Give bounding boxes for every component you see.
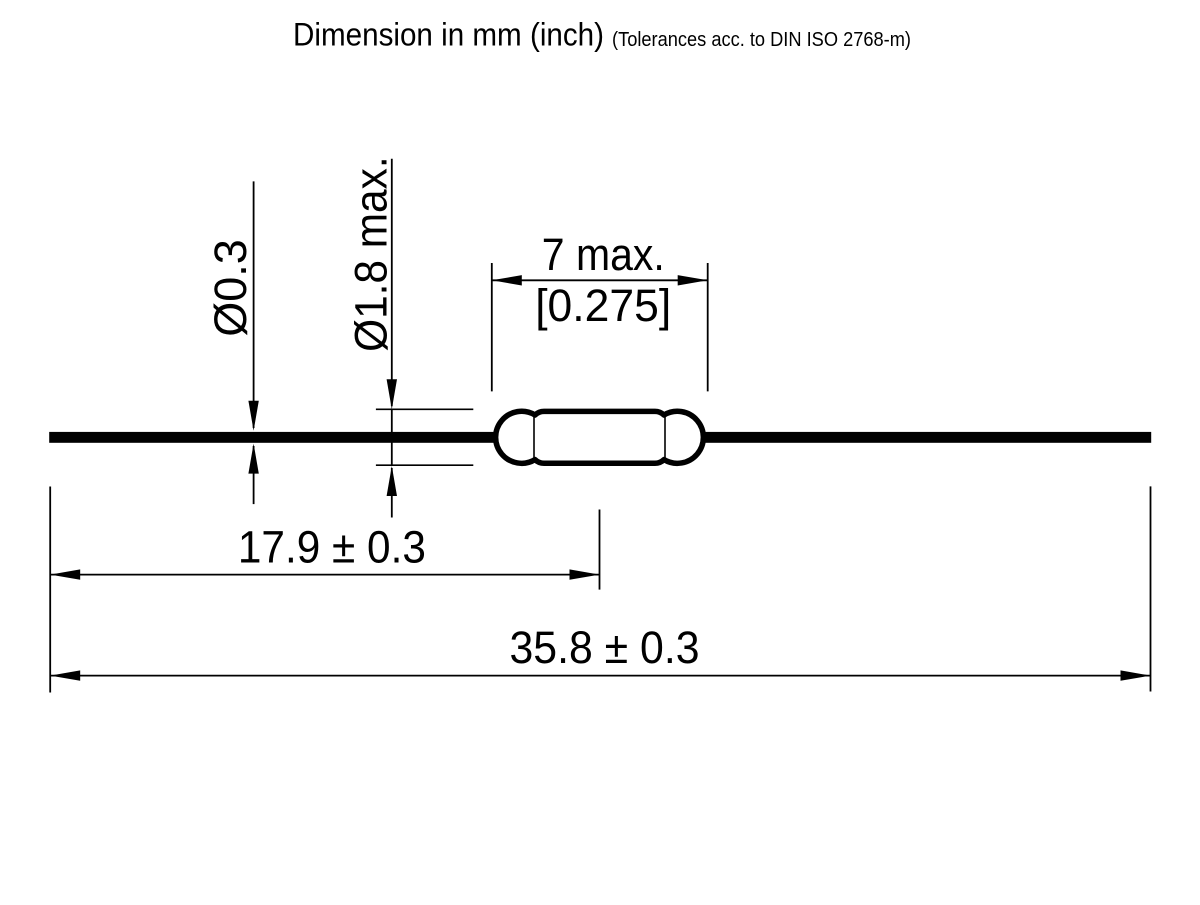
svg-text:35.8 ± 0.3: 35.8 ± 0.3: [510, 622, 700, 673]
svg-text:Ø0.3: Ø0.3: [205, 239, 256, 337]
svg-text:Ø1.8 max.: Ø1.8 max.: [346, 156, 397, 352]
svg-text:17.9 ± 0.3: 17.9 ± 0.3: [238, 521, 426, 572]
svg-text:Dimension in mm (inch): Dimension in mm (inch): [293, 16, 604, 52]
svg-text:(Tolerances acc. to DIN ISO 27: (Tolerances acc. to DIN ISO 2768-m): [612, 29, 911, 51]
svg-text:7 max.: 7 max.: [542, 229, 665, 280]
svg-text:[0.275]: [0.275]: [535, 280, 671, 331]
